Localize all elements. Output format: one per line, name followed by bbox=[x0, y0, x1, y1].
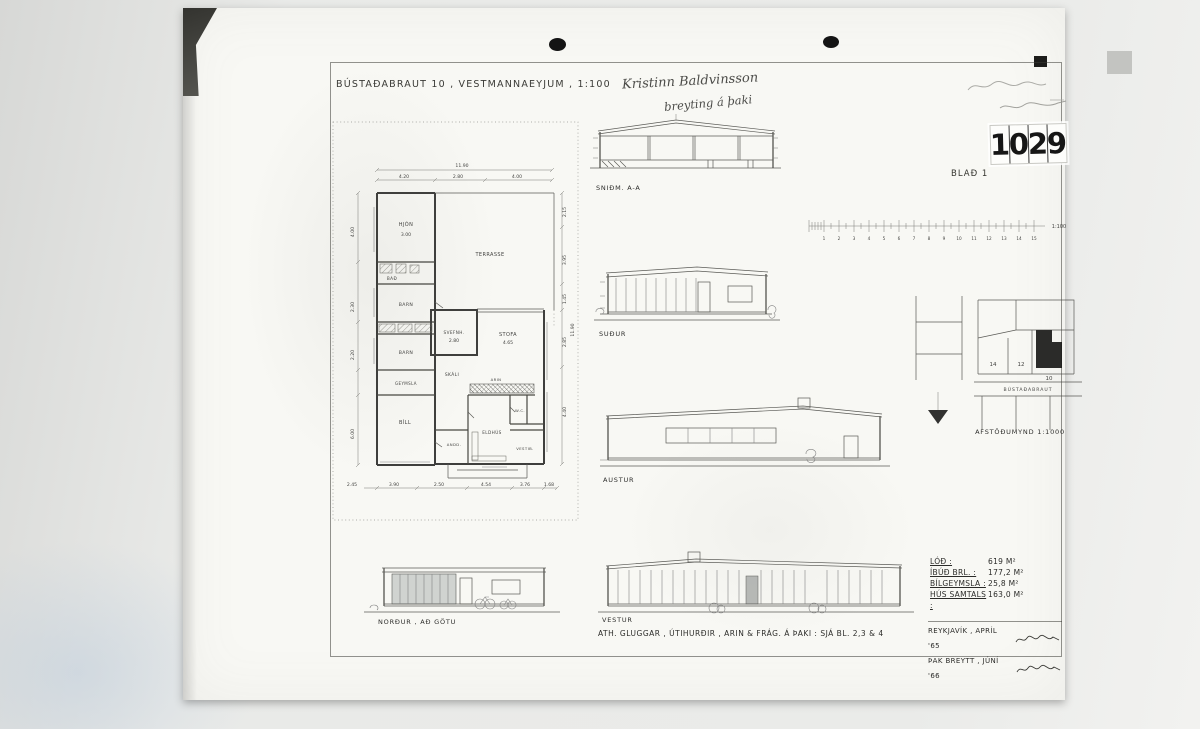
area-label: LÓÐ : bbox=[930, 556, 988, 567]
area-row: HÚS SAMTALS : 163,0 M² bbox=[930, 589, 1060, 611]
west-elevation bbox=[596, 546, 916, 626]
area-row: BÍLGEYMSLA : 25,8 M² bbox=[930, 578, 1060, 589]
south-linework bbox=[594, 267, 780, 320]
scale-bar-linework bbox=[809, 220, 1045, 232]
area-value: 177,2 M² bbox=[988, 567, 1024, 578]
site-plan-label: AFSTÖÐUMYND 1:1000 bbox=[945, 428, 1095, 436]
archive-number-stamp: 1 0 2 9 bbox=[989, 123, 1067, 165]
signature-row: REYKJAVÍK , APRÍL '65 bbox=[928, 624, 1062, 654]
scale-tick: 12 bbox=[986, 236, 992, 241]
area-table: LÓÐ : 619 M² ÍBÚÐ BRL. : 177,2 M² BÍLGEY… bbox=[930, 556, 1060, 611]
scale-tick: 13 bbox=[1001, 236, 1007, 241]
scale-tick: 3 bbox=[853, 236, 856, 241]
section-label: SNIÐM. A-A bbox=[596, 184, 641, 192]
dim: 2.80 bbox=[449, 338, 459, 344]
plot-boundary bbox=[333, 122, 578, 520]
dim: 2.20 bbox=[350, 350, 356, 360]
area-value: 25,8 M² bbox=[988, 578, 1019, 589]
section-drawing bbox=[588, 110, 783, 190]
signature-row: ÞAK BREYTT , JÚNÍ '66 bbox=[928, 654, 1062, 684]
dim: 4.40 bbox=[562, 407, 568, 417]
architect-signature-scribble bbox=[1014, 633, 1062, 646]
dim: 4.00 bbox=[512, 174, 522, 180]
room-label-hjon: HJÓN bbox=[399, 221, 414, 228]
dim: 4.54 bbox=[481, 482, 491, 488]
area-label: HÚS SAMTALS : bbox=[930, 589, 988, 611]
sheet-note: ATH. GLUGGAR , ÚTIHURÐIR , ARIN & FRÁG. … bbox=[598, 629, 884, 638]
scale-tick: 2 bbox=[838, 236, 841, 241]
north-linework bbox=[364, 568, 560, 612]
dim: 2.30 bbox=[350, 302, 356, 312]
area-row: ÍBÚÐ BRL. : 177,2 M² bbox=[930, 567, 1060, 578]
room-label-arin: ARIN bbox=[491, 377, 502, 382]
north-label: NORÐUR , AÐ GÖTU bbox=[378, 618, 456, 626]
scale-tick: 1 bbox=[823, 236, 826, 241]
lot-number-10: 10 bbox=[1046, 376, 1053, 382]
dim: 2.85 bbox=[562, 337, 568, 347]
area-label: BÍLGEYMSLA : bbox=[930, 578, 988, 589]
scale-bar-numbers: 1 2 3 4 5 6 7 8 9 10 11 12 13 14 15 1:10… bbox=[823, 224, 1067, 241]
scale-bar: 1 2 3 4 5 6 7 8 9 10 11 12 13 14 15 1:10… bbox=[803, 212, 1075, 246]
dim: 3.90 bbox=[389, 482, 399, 488]
west-linework bbox=[598, 552, 914, 613]
stamp-digit: 2 bbox=[1028, 125, 1048, 163]
room-label-bill: BÍLL bbox=[399, 419, 411, 426]
dim: 1.68 bbox=[544, 482, 554, 488]
scale-tick: 8 bbox=[928, 236, 931, 241]
dim: 1.45 bbox=[562, 294, 568, 304]
punch-hole-right bbox=[823, 36, 839, 48]
scan-edge-shade bbox=[183, 8, 197, 700]
scale-tick: 4 bbox=[868, 236, 871, 241]
room-label-bad: BAÐ bbox=[387, 276, 397, 281]
room-label-geymsla: GEYMSLA bbox=[395, 381, 417, 386]
dim: 4.65 bbox=[503, 340, 513, 346]
sheet-number: BLAÐ 1 bbox=[951, 169, 988, 179]
scale-ratio-label: 1:100 bbox=[1052, 224, 1066, 230]
room-label-eldhus: ELDHÚS bbox=[482, 430, 501, 435]
scale-tick: 14 bbox=[1016, 236, 1022, 241]
area-row: LÓÐ : 619 M² bbox=[930, 556, 1060, 567]
dim: 2.45 bbox=[347, 482, 357, 488]
street-name: BÚSTAÐABRAUT bbox=[1003, 386, 1052, 393]
room-labels: HJÓN BAÐ BARN BARN GEYMSLA BÍLL TERRASSE… bbox=[387, 221, 534, 451]
room-label-barn1: BARN bbox=[399, 302, 414, 308]
architect-signature-scribble bbox=[1015, 663, 1062, 676]
room-label-svefnh: SVEFNH. bbox=[444, 330, 465, 335]
north-elevation bbox=[362, 548, 562, 626]
east-linework bbox=[600, 398, 890, 466]
signature-block: REYKJAVÍK , APRÍL '65 ÞAK BREYTT , JÚNÍ … bbox=[928, 621, 1062, 684]
dim: 11.90 bbox=[455, 163, 468, 169]
stamp-approval-scribble bbox=[962, 72, 1077, 127]
dim: 2.50 bbox=[434, 482, 444, 488]
scribble-strokes bbox=[968, 81, 1066, 108]
scale-tick: 9 bbox=[943, 236, 946, 241]
dim: 4.00 bbox=[350, 227, 356, 237]
lot-number-12: 12 bbox=[1018, 362, 1025, 368]
scan-mark-gray bbox=[1107, 51, 1132, 74]
room-label-stofa: STOFA bbox=[499, 332, 517, 338]
dim: 3.00 bbox=[401, 232, 411, 238]
dim: 6.00 bbox=[350, 429, 356, 439]
dim: 2.80 bbox=[453, 174, 463, 180]
scale-tick: 10 bbox=[956, 236, 962, 241]
stamp-digit: 1 bbox=[991, 126, 1010, 164]
dim: 4.20 bbox=[399, 174, 409, 180]
floor-plan: 11.90 4.20 2.80 4.00 2.45 3.90 2.50 4.54… bbox=[322, 112, 592, 542]
area-value: 619 M² bbox=[988, 556, 1016, 567]
area-label: ÍBÚÐ BRL. : bbox=[930, 567, 988, 578]
room-label-terrasse: TERRASSE bbox=[474, 252, 504, 258]
site-plan: 14 12 10 BÚSTAÐABRAUT bbox=[912, 292, 1097, 434]
area-value: 163,0 M² bbox=[988, 589, 1024, 611]
room-label-skali: SKÁLI bbox=[445, 371, 459, 378]
scale-tick: 6 bbox=[898, 236, 901, 241]
west-label: VESTUR bbox=[602, 616, 633, 624]
signature-date: REYKJAVÍK , APRÍL '65 bbox=[928, 624, 1011, 654]
room-label-vestib: VESTIB. bbox=[516, 446, 533, 451]
scale-tick: 11 bbox=[971, 236, 977, 241]
room-label-andd: ANDD. bbox=[447, 442, 462, 447]
dim: 3.76 bbox=[520, 482, 530, 488]
dim: 11.90 bbox=[570, 323, 576, 336]
lot-number-14: 14 bbox=[990, 362, 997, 368]
scale-tick: 15 bbox=[1031, 236, 1037, 241]
scale-tick: 5 bbox=[883, 236, 886, 241]
room-label-barn2: BARN bbox=[399, 350, 414, 356]
shrub-scribbles bbox=[709, 603, 826, 613]
signature-date: ÞAK BREYTT , JÚNÍ '66 bbox=[928, 654, 1012, 684]
south-label: SUÐUR bbox=[599, 330, 626, 338]
section-linework bbox=[590, 114, 781, 168]
stamp-digit: 9 bbox=[1046, 124, 1066, 162]
dim: 2.15 bbox=[562, 207, 568, 217]
room-label-wc: W.C. bbox=[515, 408, 525, 413]
sheet-title: BÚSTAÐABRAUT 10 , VESTMANNAEYJUM , 1:100 bbox=[336, 79, 611, 90]
bicycle-scribbles bbox=[475, 597, 516, 609]
dim: 3.95 bbox=[562, 255, 568, 265]
stamp-digit: 0 bbox=[1009, 125, 1029, 163]
east-elevation bbox=[598, 392, 893, 482]
scale-tick: 7 bbox=[913, 236, 916, 241]
south-elevation bbox=[592, 252, 782, 336]
punch-hole-left bbox=[549, 38, 566, 51]
site-linework bbox=[916, 296, 1082, 430]
east-label: AUSTUR bbox=[603, 476, 634, 484]
